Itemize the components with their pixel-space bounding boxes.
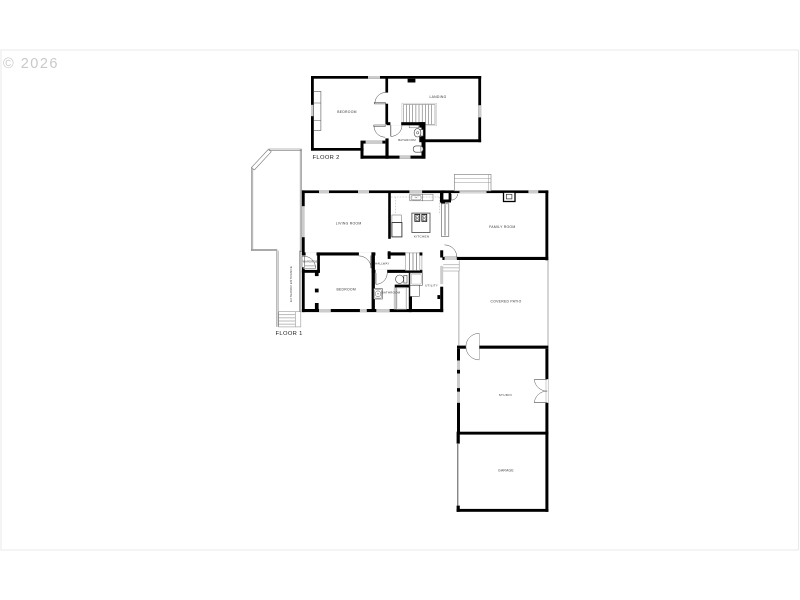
svg-text:BATHROOM: BATHROOM [382,290,401,294]
svg-text:FAMILY ROOM: FAMILY ROOM [489,225,515,229]
svg-text:WARDROBE: WARDROBE [303,260,320,264]
svg-text:BATHROOM: BATHROOM [398,138,416,142]
svg-text:EXTERIOR ENTRANCE: EXTERIOR ENTRANCE [289,266,293,302]
svg-text:LIVING ROOM: LIVING ROOM [336,221,362,225]
svg-text:COVERED PATIO: COVERED PATIO [490,300,521,304]
svg-text:UTILITY: UTILITY [425,284,438,288]
svg-text:FLOOR 2: FLOOR 2 [313,155,340,161]
svg-text:GARAGE: GARAGE [498,469,514,473]
svg-text:HALLWAY: HALLWAY [375,261,389,265]
svg-text:FLOOR 1: FLOOR 1 [276,331,303,337]
svg-text:© 2026: © 2026 [3,56,59,72]
svg-text:STUDIO: STUDIO [499,393,513,397]
svg-text:BEDROOM: BEDROOM [336,287,355,291]
svg-text:KITCHEN: KITCHEN [414,235,430,239]
svg-text:BEDROOM: BEDROOM [337,110,356,114]
svg-text:LANDING: LANDING [429,95,446,99]
